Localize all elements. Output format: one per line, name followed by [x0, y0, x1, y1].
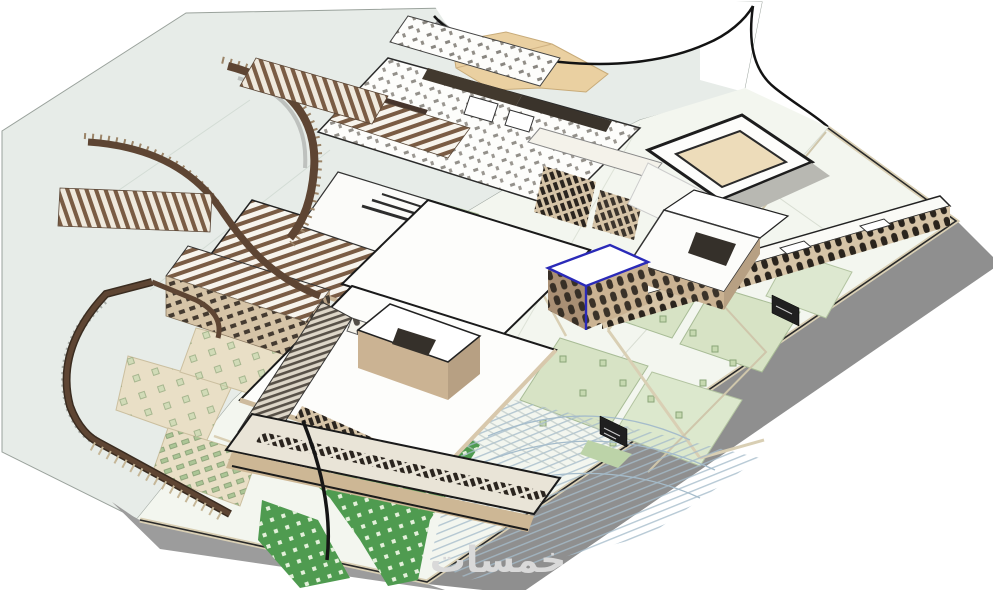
rendering-canvas: خمسات	[0, 0, 993, 590]
site-model-rendering	[0, 0, 993, 590]
slat-canopy	[58, 188, 212, 232]
